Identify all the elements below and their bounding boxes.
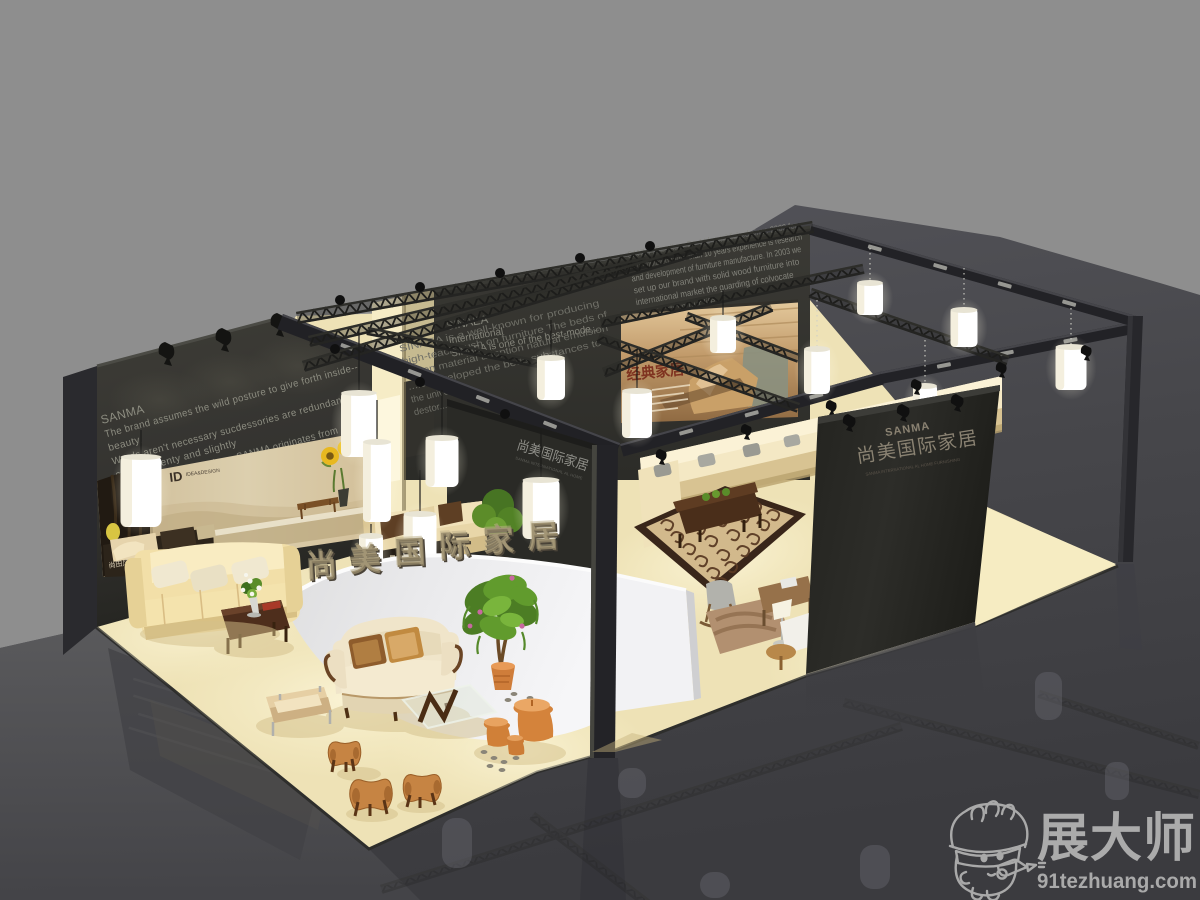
svg-text:居: 居 bbox=[526, 517, 559, 554]
svg-text:展大师: 展大师 bbox=[1037, 810, 1196, 868]
svg-text:家: 家 bbox=[481, 521, 514, 558]
svg-text:91tezhuang.com: 91tezhuang.com bbox=[1037, 869, 1197, 893]
svg-text:际: 际 bbox=[438, 526, 471, 563]
svg-text:尚: 尚 bbox=[304, 546, 337, 583]
svg-text:美: 美 bbox=[348, 540, 381, 577]
svg-text:国: 国 bbox=[393, 533, 426, 570]
